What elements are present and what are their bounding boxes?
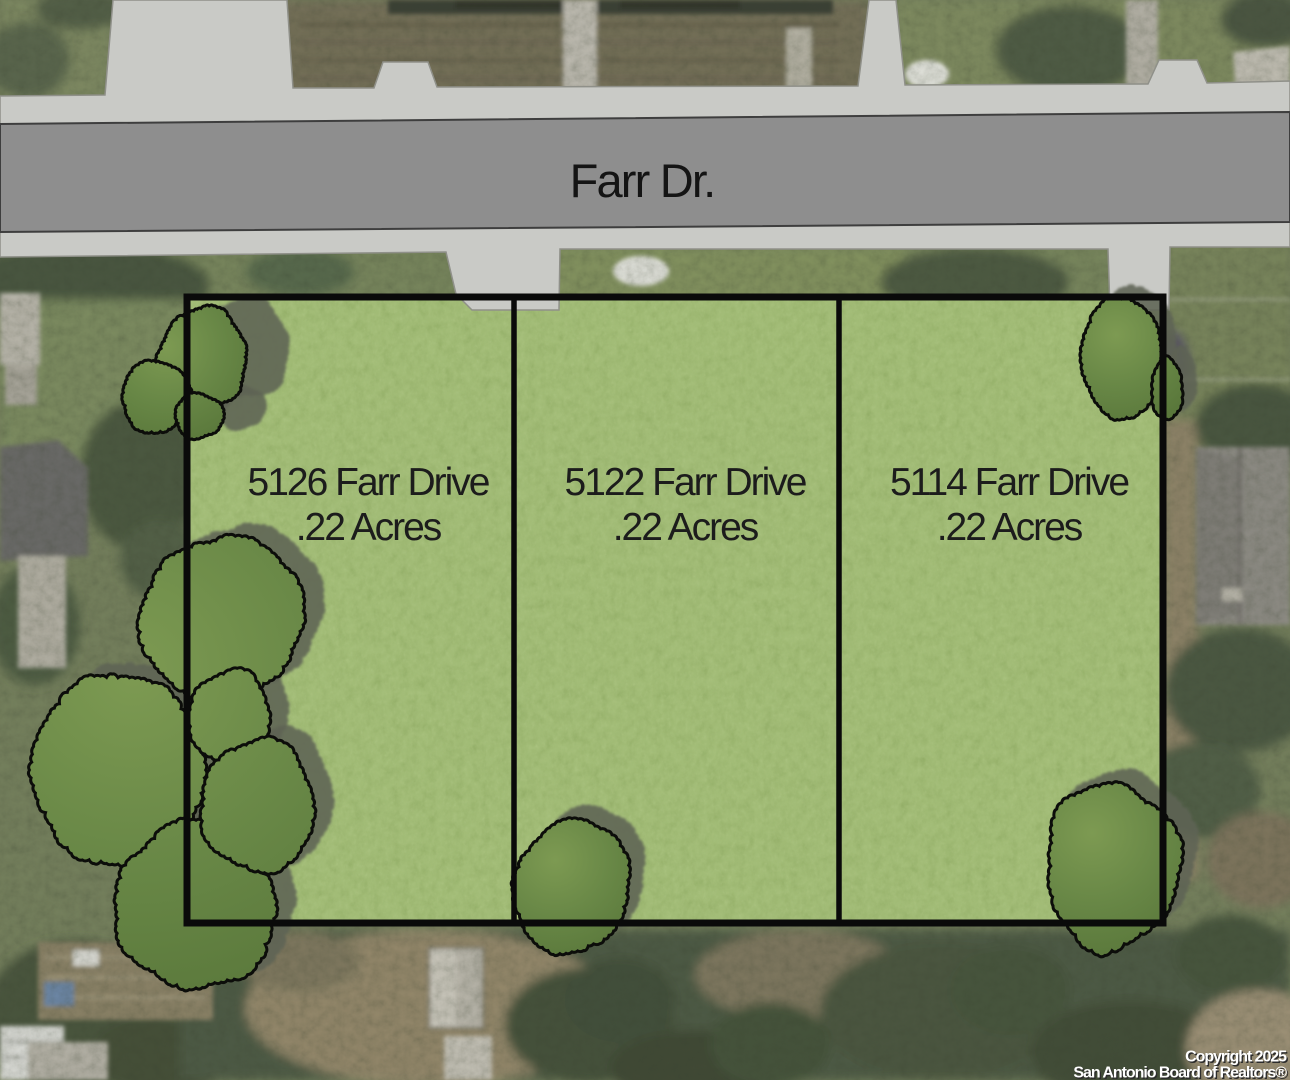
svg-text:.22 Acres: .22 Acres	[296, 506, 442, 549]
svg-text:5126 Farr Drive: 5126 Farr Drive	[248, 461, 489, 504]
svg-text:5114 Farr Drive: 5114 Farr Drive	[890, 461, 1128, 504]
svg-text:San Antonio Board of Realtors®: San Antonio Board of Realtors®	[1073, 1065, 1287, 1080]
svg-text:Farr Dr.: Farr Dr.	[570, 154, 715, 207]
svg-text:.22 Acres: .22 Acres	[613, 506, 759, 549]
svg-text:Copyright 2025: Copyright 2025	[1185, 1049, 1287, 1066]
svg-text:.22 Acres: .22 Acres	[937, 506, 1083, 549]
svg-text:5122 Farr Drive: 5122 Farr Drive	[565, 461, 806, 504]
